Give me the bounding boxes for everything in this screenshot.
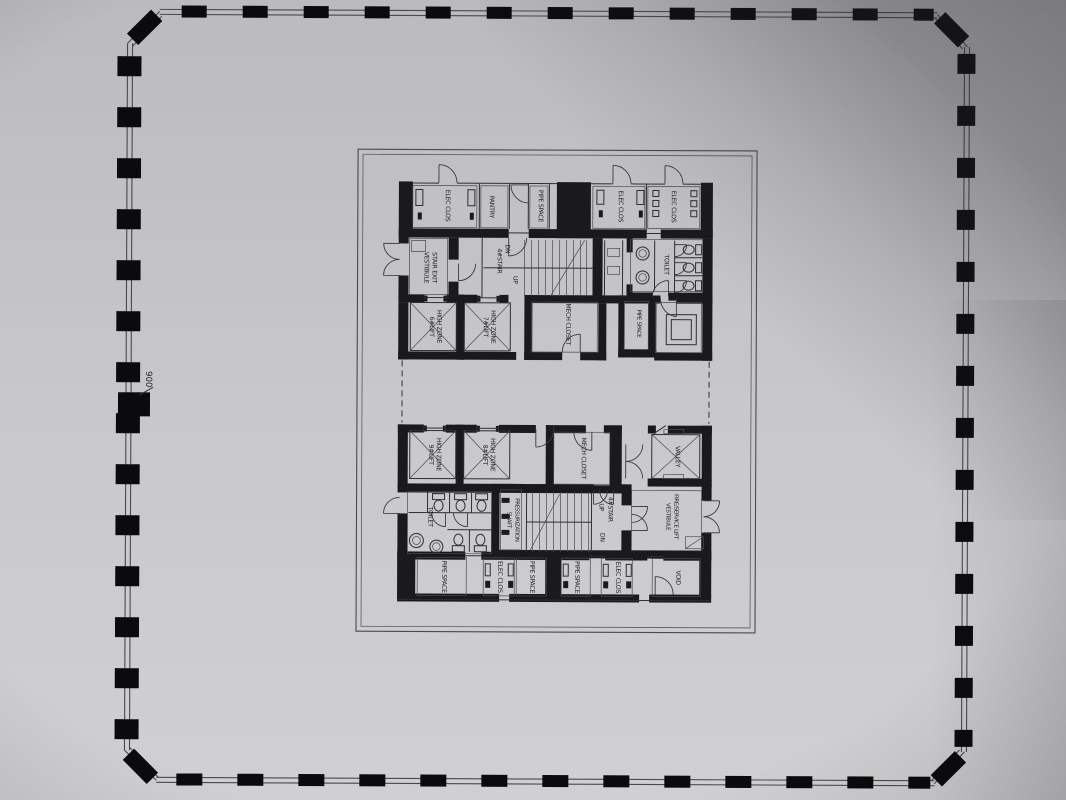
photo-shading: [0, 0, 1066, 800]
photo-of-floor-plan: 900: [0, 0, 1066, 800]
floor-plan-drawing: 900: [0, 0, 1066, 800]
